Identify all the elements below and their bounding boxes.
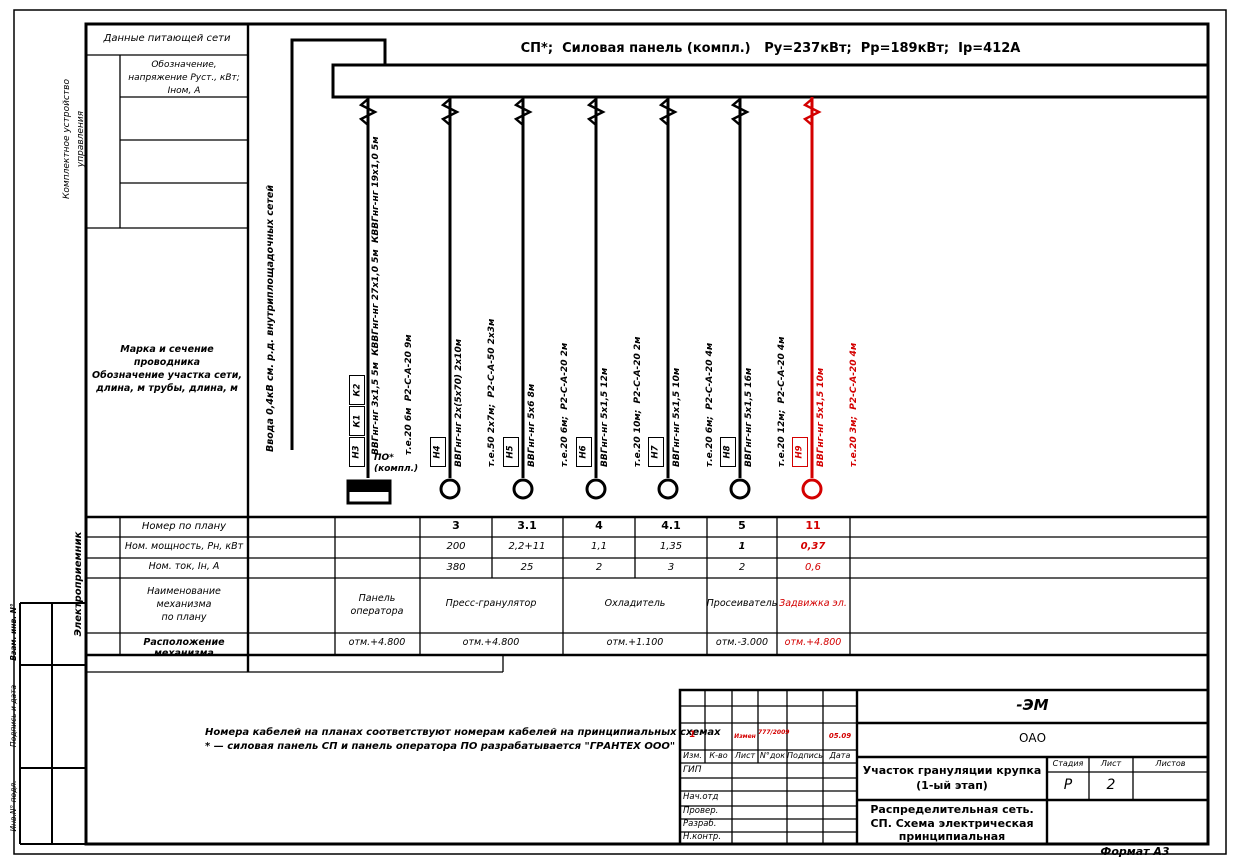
busbar <box>333 65 1208 97</box>
rev-header-data: Дата <box>823 751 857 760</box>
current-value: 2 <box>702 562 782 574</box>
sheet-value: 2 <box>1089 777 1133 793</box>
feeder-n4-cable: ВВГнг-нг 2х(5х70) 2х10м <box>454 319 465 467</box>
stage-value: Р <box>1047 777 1089 793</box>
feeder-n8-cable: ВВГнг-нг 5х1,5 16м <box>744 337 755 467</box>
elevation-value: отм.+4.800 <box>421 638 561 649</box>
rev-header-izm: Изм. <box>680 751 705 760</box>
revision-list: Измен <box>732 734 758 741</box>
object-title-line2: (1-ый этап) <box>857 778 1047 793</box>
company-name: ОАО <box>857 732 1208 746</box>
margin-stamp-vzam: Взам. инв. N° <box>10 601 26 663</box>
operator-panel-label-line2: (компл.) <box>374 464 418 475</box>
power-value: 1 <box>702 541 782 553</box>
po-cable-line: ВВГнг-нг 3х1,5 5м КВВГнг-нг 27х1,0 5м КВ… <box>371 136 382 455</box>
supply-data-header: Данные питающей сети <box>86 33 248 45</box>
feeder-n5-route: т.е.20 6м; Р2-С-А-20 2м <box>560 343 571 467</box>
stage-header: Стадия <box>1047 759 1089 768</box>
cable-mark-header-line3: длина, м трубы, длина, м <box>88 382 246 395</box>
current-value: 3 <box>631 562 711 574</box>
mechanism-name: Пресс-гранулятор <box>421 599 561 610</box>
sheet-header: Лист <box>1089 759 1133 768</box>
plan-num: 5 <box>702 520 782 533</box>
feeder-n9-cable: ВВГнг-нг 5х1,5 10м <box>816 343 827 467</box>
feeder-n7-cable: ВВГнг-нг 5х1,5 10м <box>672 343 683 467</box>
mechanism-name-red: Задвижка эл. <box>773 599 853 610</box>
format-label: Формат А3 <box>1075 846 1195 859</box>
elevation-value: отм.+1.100 <box>565 638 705 649</box>
rev-header-podpis: Подпись <box>787 751 823 760</box>
operator-panel-label: ПО* (компл.) <box>374 453 418 475</box>
document-title-line2: СП. Схема электрическая <box>857 817 1047 831</box>
load-terminal <box>441 480 459 498</box>
row-label-location: Расположение механизма <box>122 638 246 660</box>
po-cable-text: ВВГнг-нг 3х1,5 5м КВВГнг-нг 27х1,0 5м КВ… <box>349 136 371 455</box>
feeder-n6-cable: ВВГнг-нг 5х1,5 12м <box>600 337 611 467</box>
feeder-n4-route: т.е.50 2х7м; Р2-С-А-50 2х3м <box>487 319 498 467</box>
feeder-n6-route: т.е.20 10м; Р2-С-А-20 2м <box>633 337 644 467</box>
rev-header-list: Лист <box>732 751 758 760</box>
feeder-n9-route: т.е.20 3м; Р2-С-А-20 4м <box>849 343 860 467</box>
plan-num: 4.1 <box>631 520 711 533</box>
elevation-value: отм.-3.000 <box>702 638 782 649</box>
power-value-red: 0,37 <box>773 541 853 553</box>
load-terminal <box>731 480 749 498</box>
row-label-num: Номер по плану <box>122 521 246 533</box>
revision-izm: 1 <box>680 730 705 740</box>
plan-num: 3 <box>416 520 496 533</box>
po-route-line: т.е.20 6м Р2-С-А-20 9м <box>404 136 415 455</box>
row-label-power: Ном. мощность, Рн, кВт <box>122 542 246 553</box>
revision-doc: 777/2009 <box>758 730 787 737</box>
row-label-name-line2: механизма <box>122 598 246 611</box>
sign-label-nkontr: Н.контр. <box>683 833 721 843</box>
feeder-n8-text: ВВГнг-нг 5х1,5 16м т.е.20 12м; Р2-С-А-20… <box>722 337 744 467</box>
sign-label-nachotd: Нач.отд <box>683 793 718 803</box>
drawing-sheet: Взам. инв. N° Подпись и дата Инв.N° подл… <box>0 0 1240 864</box>
current-value: 380 <box>416 562 496 574</box>
margin-stamp-inv: Инв.N° подл. <box>10 769 26 843</box>
operator-panel-label-line1: ПО* <box>374 453 418 464</box>
document-title: Распределительная сеть. СП. Схема электр… <box>857 803 1047 844</box>
breaker-symbols <box>361 99 747 125</box>
cable-mark-header: Марка и сечение проводника Обозначение у… <box>88 343 246 395</box>
revision-date: 05.09 <box>823 732 857 740</box>
feeder-n7-route: т.е.20 6м; Р2-С-А-20 4м <box>705 343 716 467</box>
feeder-n8-route: т.е.20 12м; Р2-С-А-20 4м <box>777 337 788 467</box>
load-terminal <box>659 480 677 498</box>
consumers-side-label: Электроприемник <box>73 515 93 653</box>
cable-mark-header-line2: Обозначение участка сети, <box>88 369 246 382</box>
note-line1: Номера кабелей на планах соответствуют н… <box>205 727 721 739</box>
cable-mark-header-line1: Марка и сечение проводника <box>88 343 246 369</box>
plan-num: 4 <box>559 520 639 533</box>
rev-header-doc: N°док <box>758 751 787 760</box>
power-value: 1,1 <box>559 541 639 553</box>
plan-num: 3.1 <box>487 520 567 533</box>
row-label-name: Наименование механизма по плану <box>122 585 246 624</box>
document-title-line3: принципиальная <box>857 830 1047 844</box>
power-value: 2,2+11 <box>487 541 567 553</box>
object-title: Участок грануляции крупка (1-ый этап) <box>857 763 1047 793</box>
sign-label-gip: ГИП <box>683 765 702 775</box>
feeder-n5-text: ВВГнг-нг 5х6 8м т.е.20 6м; Р2-С-А-20 2м <box>505 343 527 467</box>
designation-header: Обозначение, напряжение Руст., кВт; Iном… <box>124 59 244 98</box>
sign-label-razrab: Разраб. <box>683 820 716 830</box>
feeder-n9-text: ВВГнг-нг 5х1,5 10м т.е.20 3м; Р2-С-А-20 … <box>794 343 816 467</box>
current-value-red: 0,6 <box>773 562 853 574</box>
power-value: 1,35 <box>631 541 711 553</box>
feeder-n5-cable: ВВГнг-нг 5х6 8м <box>527 343 538 467</box>
feeder-n7-text: ВВГнг-нг 5х1,5 10м т.е.20 6м; Р2-С-А-20 … <box>650 343 672 467</box>
load-terminal-red <box>803 480 821 498</box>
plan-num-red: 11 <box>773 520 853 533</box>
incoming-feed-label: Ввода 0,4кВ см. р.д. внутриплощадочных с… <box>266 185 278 452</box>
sign-label-prover: Провер. <box>683 807 718 817</box>
feeder-n6-text: ВВГнг-нг 5х1,5 12м т.е.20 10м; Р2-С-А-20… <box>578 337 600 467</box>
rev-header-kvo: К-во <box>705 751 732 760</box>
elevation-value: отм.+4.800 <box>337 638 417 649</box>
row-label-current: Ном. ток, Iн, А <box>122 562 246 573</box>
row-label-name-line3: по плану <box>122 611 246 624</box>
load-terminal <box>587 480 605 498</box>
note-line2: * — силовая панель СП и панель оператора… <box>205 741 675 753</box>
operator-panel-symbol-fill <box>348 481 390 492</box>
mechanism-name: Охладитель <box>565 599 705 610</box>
document-title-line1: Распределительная сеть. <box>857 803 1047 817</box>
row-label-name-line1: Наименование <box>122 585 246 598</box>
control-device-header: Комплектное устройство управления <box>60 54 90 224</box>
power-value: 200 <box>416 541 496 553</box>
object-title-line1: Участок грануляции крупка <box>857 763 1047 778</box>
sheets-header: Листов <box>1133 759 1208 768</box>
mechanism-name: Панель оператора <box>342 592 412 618</box>
panel-title: СП*; Силовая панель (компл.) Ру=237кВт; … <box>333 42 1208 57</box>
mechanism-name: Просеиватель <box>702 599 782 610</box>
current-value: 2 <box>559 562 639 574</box>
load-terminal <box>514 480 532 498</box>
margin-stamp-podpis: Подпись и дата <box>10 666 26 766</box>
current-value: 25 <box>487 562 567 574</box>
elevation-value-red: отм.+4.800 <box>773 638 853 649</box>
document-code: -ЭМ <box>857 697 1208 714</box>
feeder-n4-text: ВВГнг-нг 2х(5х70) 2х10м т.е.50 2х7м; Р2-… <box>432 319 454 467</box>
